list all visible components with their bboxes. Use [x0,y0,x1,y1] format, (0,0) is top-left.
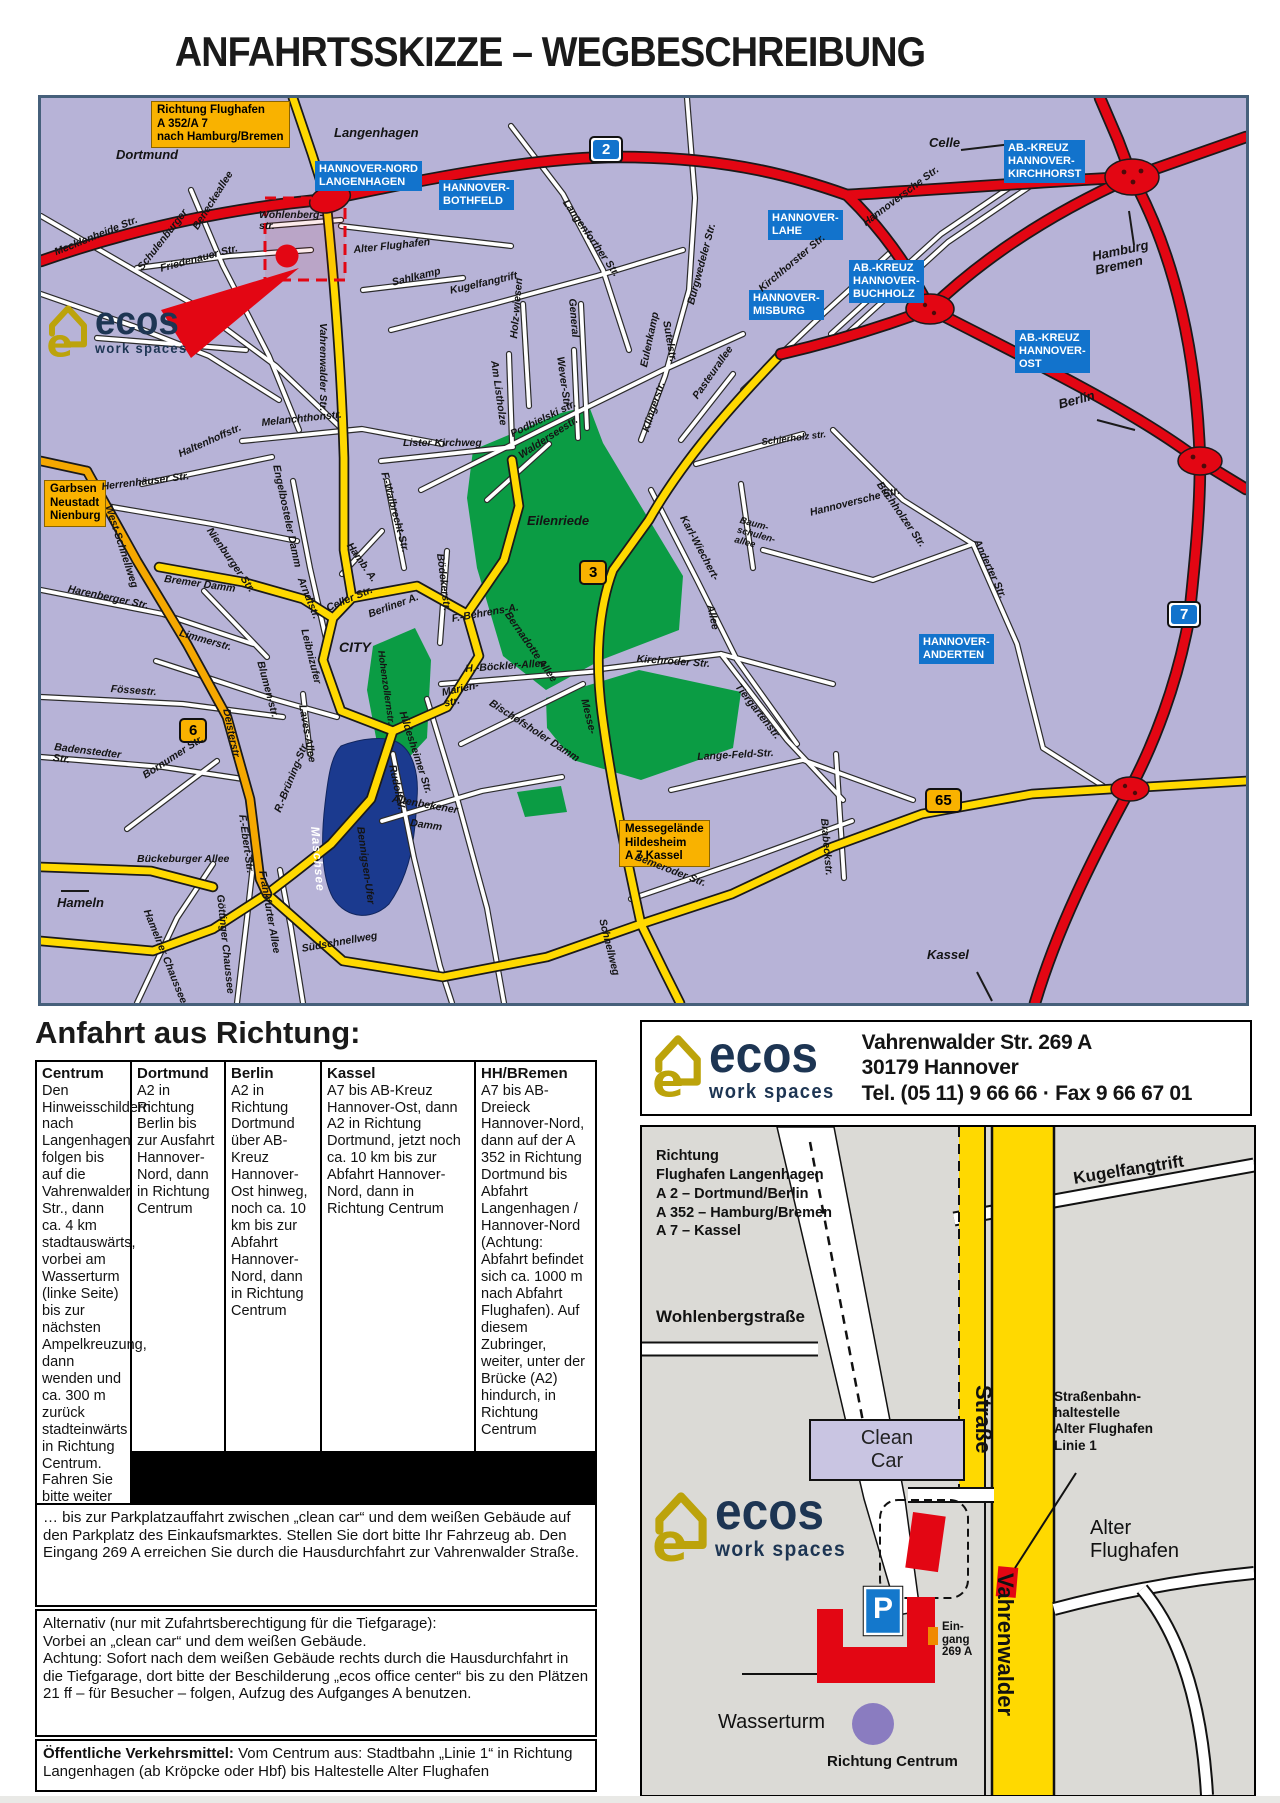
route-badge-3: 3 [579,560,607,585]
col-header-dortmund: Dortmund [137,1065,219,1083]
para-transport-lead: Öffentliche Verkehrsmittel: [43,1745,234,1762]
city-box-kirchhorst: AB.-KREUZ HANNOVER- KIRCHHORST [1004,140,1085,183]
directions-heading: Anfahrt aus Richtung: [35,1015,361,1051]
city-box-lahe: HANNOVER- LAHE [768,210,843,240]
para-alternativ: Alternativ (nur mit Zufahrtsberechtigung… [35,1609,597,1737]
ecos-logo-detail: e ecos work spaces [654,1489,858,1565]
ecos-house-icon: e [654,1489,708,1565]
route-badge-65: 65 [925,788,962,813]
brand-tagline: work spaces [715,1538,846,1562]
para-transport: Öffentliche Verkehrsmittel: Vom Centrum … [35,1739,597,1792]
parking-sign-letter: P [873,1592,893,1626]
street-label-bueckeburger: Bückeburger Allee [137,854,229,865]
address-box: e ecos work spaces Vahrenwalder Str. 269… [640,1020,1252,1116]
brand-tagline: work spaces [95,340,188,356]
detail-label-wasserturm: Wasserturm [718,1711,825,1734]
directions-col-centrum: CentrumDen Hinweisschildern nach Langenh… [37,1062,130,1503]
col-header-centrum: Centrum [42,1065,125,1083]
detail-label-wohlenbergstrasse: Wohlenbergstraße [656,1307,805,1327]
ecos-house-icon: e [48,303,88,359]
address-phone: Tel. (05 11) 9 66 66 · Fax 9 66 67 01 [862,1081,1193,1107]
street-label-langenhagen: Langenhagen [334,126,419,140]
dest-box-garbsen: Garbsen Neustadt Nienburg [44,480,106,527]
col-header-berlin: Berlin [231,1065,315,1083]
brand-name: ecos [95,303,188,339]
detail-label-richtung-centrum: Richtung Centrum [827,1753,958,1770]
detail-label-alter-flughafen: Alter Flughafen [1090,1517,1179,1563]
para-parkplatz: … bis zur Parkplatzauffahrt zwischen „cl… [35,1503,597,1607]
directions-col-dortmund: DortmundA2 in Richtung Berlin bis zur Au… [132,1062,224,1451]
directions-col-kassel: KasselA7 bis AB-Kreuz Hannover-Ost, dann… [322,1062,474,1451]
street-label-general: General [566,298,580,338]
dest-box-flughafen: Richtung Flughafen A 352/A 7 nach Hambur… [151,101,290,148]
red-building [905,1512,945,1572]
col-header-kassel: Kassel [327,1065,469,1083]
street-label-wohlenberg: Wohlenberg- str. [259,210,323,232]
detail-label-strasse: Straße [970,1385,996,1453]
brand-name: ecos [709,1032,835,1079]
street-label-dortmund: Dortmund [116,148,178,162]
detail-richtung-block: Richtung Flughafen Langenhagen A 2 – Dor… [656,1147,832,1241]
directions-table: DortmundA2 in Richtung Berlin bis zur Au… [35,1060,597,1547]
col-text-kassel: A7 bis AB-Kreuz Hannover-Ost, dann A2 in… [327,1083,461,1218]
brand-name: ecos [715,1489,846,1536]
detail-label-tram-stop: Straßenbahn- haltestelle Alter Flughafen… [1054,1389,1153,1454]
svg-text:e: e [654,1514,688,1565]
address-city: 30179 Hannover [862,1055,1193,1081]
route-badge-2: 2 [589,136,623,163]
svg-text:e: e [654,1053,684,1100]
directions-col-hhbremen: HH/BRemenA7 bis AB-Dreieck Hannover-Nord… [476,1062,595,1451]
city-box-hannover-nord: HANNOVER-NORD LANGENHAGEN [315,161,422,191]
col-header-hhbremen: HH/BRemen [481,1065,590,1083]
city-box-buchholz: AB.-KREUZ HANNOVER- BUCHHOLZ [849,260,924,303]
address-street: Vahrenwalder Str. 269 A [862,1030,1193,1056]
detail-label-vahrenwalder: Vahrenwalder [992,1573,1018,1716]
city-box-anderten: HANNOVER- ANDERTEN [919,634,994,664]
col-text-berlin: A2 in Richtung Dortmund über AB-Kreuz Ha… [231,1083,308,1319]
street-label-kassel: Kassel [927,948,969,962]
address-lines: Vahrenwalder Str. 269 A 30179 Hannover T… [862,1030,1193,1107]
city-box-bothfeld: HANNOVER- BOTHFELD [439,180,514,210]
ecos-logo: e ecos work spaces [48,303,196,359]
brand-tagline: work spaces [709,1081,835,1104]
svg-text:e: e [48,321,73,359]
col-text-hhbremen: A7 bis AB-Dreieck Hannover-Nord, dann au… [481,1083,585,1438]
route-badge-2-label: 2 [593,140,619,159]
route-badge-7: 7 [1167,601,1201,628]
directions-col-berlin: BerlinA2 in Richtung Dortmund über AB-Kr… [226,1062,320,1451]
park-label-eilenriede: Eilenriede [527,514,589,528]
street-label-lister-kirchweg: Lister Kirchweg [403,438,482,449]
street-label-city: CITY [339,640,371,655]
city-box-misburg: HANNOVER- MISBURG [749,290,824,320]
dest-box-messegelaende: Messegelände Hildesheim A 7 Kassel [619,820,710,867]
city-box-ost: AB.-KREUZ HANNOVER- OST [1015,330,1090,373]
ecos-house-icon: e [654,1032,702,1100]
ecos-logo-address: e ecos work spaces [654,1032,846,1104]
page-edge [0,1796,1280,1803]
street-label-celle: Celle [929,136,960,150]
detail-label-clean-car: Clean Car [810,1427,964,1473]
street-label-hameln: Hameln [57,896,104,910]
page: ANFAHRTSSKIZZE – WEGBESCHREIBUNG [0,0,1280,1803]
page-title: ANFAHRTSSKIZZE – WEGBESCHREIBUNG [87,28,1014,76]
route-badge-7-label: 7 [1171,605,1197,624]
main-map: e ecos work spaces Richtung Flughafen A … [38,95,1249,1006]
entrance-marker [928,1627,938,1645]
detail-label-eingang: Ein- gang 269 A [942,1621,972,1659]
wasserturm-circle [852,1703,894,1745]
detail-map: Richtung Flughafen Langenhagen A 2 – Dor… [640,1125,1256,1797]
location-dot [276,245,299,268]
street-label-vahrenwalder: Vahrenwalder Str. [317,323,328,411]
